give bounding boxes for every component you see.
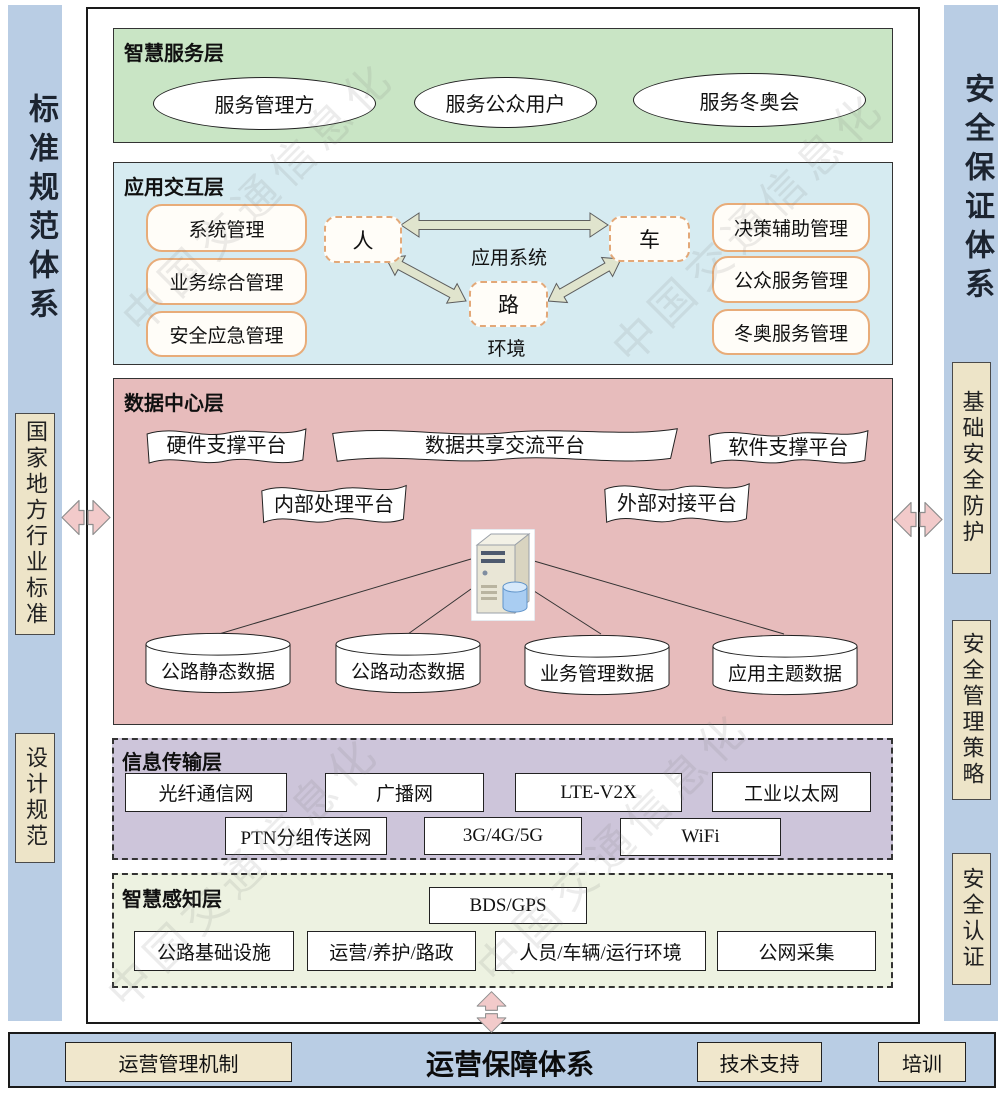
operation-support-bar: 运营管理机制 运营保障体系 技术支持 培训 (8, 1032, 996, 1088)
operation-support-title: 运营保障体系 (340, 1043, 680, 1083)
ellipse-service-manager: 服务管理方 (153, 77, 376, 130)
person-node: 人 (324, 216, 402, 263)
person-vehicle-arrow (401, 213, 608, 237)
environment-label: 环境 (469, 334, 544, 361)
wifi-box: WiFi (620, 818, 781, 856)
internal-processing-platform-banner: 内部处理平台 (259, 479, 409, 529)
public-network-collection-box: 公网采集 (717, 931, 876, 971)
left-connector-arrow (60, 494, 112, 541)
application-layer: 应用交互层 系统管理 业务综合管理 安全应急管理 决策辅助管理 公众服务管理 冬… (113, 162, 893, 365)
service-layer: 智慧服务层 服务管理方 服务公众用户 服务冬奥会 (113, 28, 893, 143)
right-sidebar: 安全保证体系 基础安全防护 安全管理策略 安全认证 (944, 5, 998, 1021)
security-item-management-policy: 安全管理策略 (952, 620, 991, 800)
bottom-connector-arrow (468, 990, 515, 1034)
business-management-data-cylinder: 业务管理数据 (523, 633, 671, 697)
vehicle-node: 车 (609, 216, 690, 262)
personnel-vehicle-environment-box: 人员/车辆/运行环境 (495, 931, 706, 971)
road-infrastructure-box: 公路基础设施 (134, 931, 294, 971)
industrial-ethernet-box: 工业以太网 (712, 772, 871, 812)
left-sidebar: 标准规范体系 国家地方行业标准 设计规范 (8, 5, 62, 1021)
lte-v2x-box: LTE-V2X (515, 773, 682, 812)
data-sharing-platform-banner: 数据共享交流平台 (326, 423, 684, 467)
ellipse-service-public: 服务公众用户 (414, 77, 597, 128)
security-item-certification: 安全认证 (952, 853, 991, 985)
left-sidebar-title: 标准规范体系 (8, 93, 62, 327)
architecture-diagram: 标准规范体系 国家地方行业标准 设计规范 安全保证体系 基础安全防护 安全管理策… (0, 0, 1006, 1094)
security-item-basic-protection: 基础安全防护 (952, 362, 991, 574)
operation-management-box: 运营管理机制 (65, 1042, 292, 1082)
external-interface-platform-banner: 外部对接平台 (602, 477, 752, 529)
transmission-layer: 信息传输层 光纤通信网 广播网 LTE-V2X 工业以太网 PTN分组传送网 3… (112, 738, 893, 860)
hardware-platform-banner: 硬件支撑平台 (144, 423, 309, 469)
standard-item-design: 设计规范 (15, 733, 55, 863)
right-sidebar-title: 安全保证体系 (944, 73, 998, 307)
standard-item-national: 国家地方行业标准 (15, 413, 55, 635)
perception-layer-label: 智慧感知层 (122, 883, 222, 912)
ptn-network-box: PTN分组传送网 (225, 817, 387, 855)
application-system-label: 应用系统 (429, 243, 589, 270)
software-platform-banner: 软件支撑平台 (706, 425, 871, 469)
road-static-data-cylinder: 公路静态数据 (144, 631, 292, 695)
server-icon (471, 529, 535, 621)
application-theme-data-cylinder: 应用主题数据 (711, 633, 859, 697)
ellipse-service-olympics: 服务冬奥会 (633, 73, 866, 127)
tech-support-box: 技术支持 (697, 1042, 822, 1082)
service-layer-label: 智慧服务层 (124, 37, 224, 66)
operation-maintenance-box: 运营/养护/路政 (307, 931, 476, 971)
right-connector-arrow (892, 496, 944, 543)
broadcast-network-box: 广播网 (325, 773, 484, 812)
road-node: 路 (469, 281, 548, 327)
data-center-layer: 数据中心层 硬件支撑平台 数据共享交流平台 软件支撑平台 内部处理平台 外部对接 (113, 378, 893, 725)
perception-layer: 智慧感知层 BDS/GPS 公路基础设施 运营/养护/路政 人员/车辆/运行环境… (112, 873, 893, 988)
road-dynamic-data-cylinder: 公路动态数据 (334, 631, 482, 695)
transmission-layer-label: 信息传输层 (122, 746, 222, 775)
cellular-network-box: 3G/4G/5G (424, 817, 582, 855)
bds-gps-box: BDS/GPS (429, 887, 587, 924)
training-box: 培训 (878, 1042, 966, 1082)
fiber-network-box: 光纤通信网 (125, 773, 287, 812)
